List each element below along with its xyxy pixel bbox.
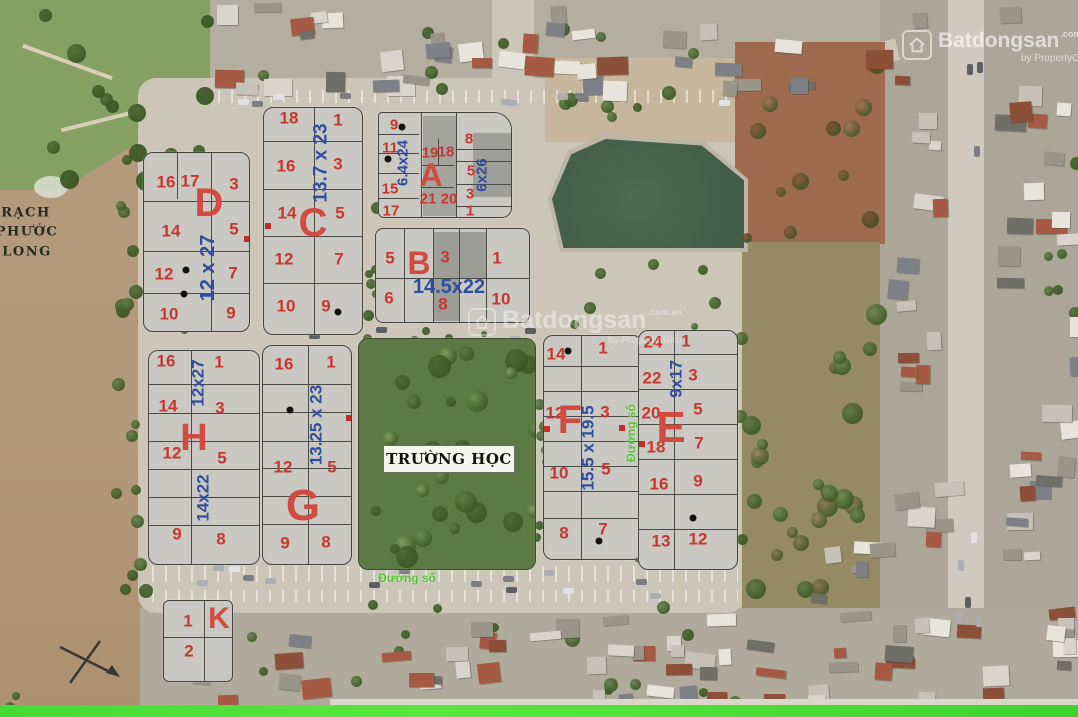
parked-car: [956, 612, 962, 623]
plot-number: 12: [275, 251, 294, 268]
tree: [383, 431, 398, 446]
house-roof: [455, 660, 471, 678]
street-name-label: Đường số: [624, 404, 638, 462]
house-roof: [597, 56, 629, 75]
tree: [698, 265, 708, 275]
plot-marker-red: [265, 223, 271, 229]
house-roof: [983, 688, 1004, 700]
house-roof: [1006, 517, 1029, 527]
house-roof: [894, 492, 920, 511]
plot-dimension: 15.5 x 19.5: [580, 405, 597, 490]
compass-arrow: [50, 635, 140, 690]
plot-number: 7: [334, 251, 343, 268]
house-roof: [300, 30, 315, 40]
tree: [351, 676, 362, 687]
tree: [129, 285, 143, 299]
parked-car: [636, 579, 647, 585]
house-roof: [409, 673, 434, 687]
tree: [838, 170, 849, 181]
plot-number: 5: [327, 459, 336, 476]
parked-car: [471, 581, 482, 587]
tree: [792, 173, 809, 190]
tree: [47, 141, 60, 154]
tree: [39, 9, 52, 22]
plot-number: 17: [383, 204, 400, 219]
house-roof: [373, 80, 399, 93]
parked-car: [974, 146, 980, 157]
block-letter-a: A: [419, 159, 442, 191]
tree: [607, 112, 617, 122]
block-h: 16 1 14 3 12 5 9 8 H 12x27 14x22: [148, 350, 260, 565]
plot-dimension: 6.4x24: [396, 140, 411, 186]
plot-number: 20: [441, 192, 458, 207]
school-block: TRƯỜNG HỌC: [358, 338, 536, 570]
parked-car: [238, 99, 249, 105]
house-roof: [746, 639, 774, 652]
parked-car: [719, 100, 730, 106]
tree: [682, 629, 694, 641]
tree: [60, 170, 79, 189]
parked-car: [197, 580, 208, 586]
tree: [128, 104, 146, 122]
tree: [604, 678, 618, 692]
tree: [826, 121, 841, 136]
tree: [757, 439, 768, 450]
house-roof: [1010, 463, 1032, 477]
house-roof: [576, 63, 596, 80]
house-roof: [1024, 183, 1045, 201]
plot-marker-dot: [399, 124, 406, 131]
house-roof: [866, 50, 893, 69]
block-g: 16 1 12 5 9 8 G 13.25 x 23: [262, 345, 352, 565]
plot-marker-dot: [183, 267, 190, 274]
plot-number: 8: [438, 296, 447, 313]
tree: [111, 488, 122, 499]
tree: [784, 226, 797, 239]
house-roof: [1057, 103, 1072, 117]
house-roof: [1043, 151, 1064, 166]
plot-number: 10: [550, 465, 569, 482]
tree: [422, 327, 430, 335]
tree: [196, 87, 214, 105]
house-roof: [671, 645, 684, 657]
parked-car: [544, 570, 555, 576]
house-roof: [927, 332, 942, 351]
house-roof: [934, 481, 964, 497]
block-a: 9 11 15 17 19 18 21 20 8 5 3 1 A 6.4x24 …: [378, 112, 512, 218]
tree: [527, 504, 536, 518]
house-roof: [472, 58, 492, 68]
plot-number: 1: [214, 354, 223, 371]
tree: [821, 485, 838, 502]
parked-car: [501, 99, 512, 105]
plot-dimension: 14.5x22: [413, 277, 485, 297]
house-roof: [1007, 218, 1034, 235]
parked-car: [557, 94, 568, 100]
plot-dimension: 13.7 x 23: [312, 123, 331, 202]
tree: [709, 297, 721, 309]
house-roof: [756, 667, 787, 679]
house-roof: [840, 611, 872, 623]
plot-number: 14: [547, 346, 566, 363]
river-name-line2: PHƯỚC: [0, 225, 58, 240]
house-roof: [498, 50, 526, 69]
house-roof: [1036, 475, 1063, 487]
house-roof: [603, 81, 628, 102]
house-roof: [919, 113, 937, 129]
house-roof: [791, 78, 808, 94]
plot-marker-dot: [385, 156, 392, 163]
house-roof: [663, 30, 687, 48]
parked-car: [958, 560, 964, 571]
plot-number: 21: [420, 192, 437, 207]
plot-number: 2: [184, 643, 193, 660]
house-roof: [1024, 552, 1040, 561]
house-roof: [718, 649, 731, 666]
street-name-label: Đường số: [378, 571, 436, 585]
house-roof: [895, 76, 910, 86]
house-roof: [254, 3, 281, 12]
parked-car: [229, 566, 240, 572]
house-roof: [933, 199, 949, 218]
house-roof: [425, 42, 450, 59]
tree: [842, 403, 863, 424]
watermark-byline: by PropertyGuru: [1021, 54, 1078, 64]
tree: [793, 535, 809, 551]
house-roof: [829, 661, 858, 672]
block-e: 24 1 22 3 20 5 18 7 16 9 13 12 E 9x17: [638, 330, 738, 570]
house-roof: [288, 634, 311, 648]
plot-marker-dot: [335, 309, 342, 316]
block-letter-c: C: [299, 203, 328, 243]
house-roof: [1070, 357, 1078, 377]
plot-number: 10: [277, 298, 296, 315]
house-roof: [774, 39, 802, 54]
tree: [737, 534, 748, 545]
tree: [747, 494, 762, 509]
tree: [833, 351, 846, 364]
house-roof: [887, 279, 909, 300]
block-letter-b: B: [407, 247, 430, 279]
tree: [633, 103, 642, 112]
tree: [371, 506, 381, 516]
house-roof: [675, 56, 693, 67]
watermark-top-right: Batdongsan .com.vn by PropertyGuru: [902, 30, 1078, 64]
parked-car: [243, 575, 254, 581]
tree: [466, 390, 488, 412]
tree: [131, 420, 140, 429]
plot-marker-dot: [596, 538, 603, 545]
plot-number: 1: [681, 333, 690, 350]
tree: [67, 44, 86, 63]
plot-number: 1: [333, 112, 342, 129]
tree: [866, 304, 887, 325]
house-roof: [998, 246, 1020, 266]
tree: [368, 600, 378, 610]
plot-number: 7: [228, 265, 237, 282]
watermark-domain: .com.vn: [1060, 30, 1078, 39]
house-roof: [1009, 101, 1033, 123]
river-name-line3: LONG: [2, 245, 51, 260]
tree: [396, 546, 418, 568]
plot-number: 5: [335, 205, 344, 222]
plot-number: 12: [274, 459, 293, 476]
house-roof: [1057, 233, 1078, 245]
tree: [363, 310, 374, 321]
house-roof: [700, 24, 718, 41]
house-roof: [666, 664, 692, 675]
plot-number: 14: [278, 205, 297, 222]
house-roof: [926, 532, 942, 548]
tree: [746, 579, 766, 599]
tree: [112, 378, 125, 391]
plot-number: 8: [559, 525, 568, 542]
house-roof: [884, 645, 913, 663]
plot-number: 1: [466, 204, 474, 219]
tree: [459, 346, 474, 361]
parked-car: [563, 588, 574, 594]
house-roof: [897, 257, 920, 273]
plot-number: 1: [326, 354, 335, 371]
plot-number: 1: [183, 613, 192, 630]
tree: [750, 123, 766, 139]
tree: [407, 395, 421, 409]
tree: [120, 584, 131, 595]
tree: [127, 245, 139, 257]
plot-dimension: 14x22: [195, 474, 212, 521]
plot-number: 3: [333, 156, 342, 173]
house-roof: [707, 613, 736, 626]
house-roof: [1042, 405, 1072, 423]
plot-number: 3: [600, 404, 609, 421]
house-roof: [907, 506, 935, 527]
tree: [1053, 285, 1063, 295]
house-roof: [1057, 456, 1076, 478]
tree: [596, 32, 606, 42]
plot-number: 3: [440, 249, 449, 266]
house-roof: [1063, 638, 1077, 654]
watermark-brand: Batdongsan: [502, 308, 646, 333]
house-roof: [593, 690, 605, 699]
plot-number: 18: [280, 110, 299, 127]
plot-dimension: 12x27: [190, 359, 207, 406]
plot-number: 1: [492, 250, 501, 267]
tree: [259, 667, 268, 676]
block-letter-d: D: [195, 183, 224, 223]
plot-marker-red: [346, 415, 352, 421]
plot-number: 3: [229, 176, 238, 193]
house-roof: [700, 667, 717, 680]
plot-number: 14: [162, 223, 181, 240]
house-roof: [834, 648, 847, 659]
house-roof: [446, 647, 468, 662]
parked-car: [273, 94, 284, 100]
tree: [630, 679, 641, 690]
plot-number: 22: [643, 370, 662, 387]
tree: [131, 515, 144, 528]
plot-dimension: 12 x 27: [198, 235, 218, 302]
tree: [121, 298, 134, 311]
satellite-plot-map: 16 17 3 14 5 12 7 10 9 D 12 x 27 18 1 16…: [0, 0, 1078, 717]
tree: [127, 570, 138, 581]
house-roof: [1003, 549, 1021, 560]
tree: [862, 211, 879, 228]
house-roof: [874, 662, 892, 680]
house-roof: [914, 618, 929, 634]
house-roof: [1060, 419, 1078, 439]
house-roof: [646, 684, 674, 698]
house-roof: [218, 695, 238, 706]
brand-house-icon: [902, 30, 932, 60]
tree: [12, 692, 20, 700]
plot-number: 9: [172, 526, 181, 543]
watermark-domain: .com.vn: [647, 308, 681, 317]
tree: [771, 549, 783, 561]
plot-number: 6: [384, 290, 393, 307]
parked-car: [340, 93, 351, 99]
tree: [126, 430, 138, 442]
tree: [401, 630, 410, 639]
block-k: 1 2 K: [163, 600, 233, 682]
block-letter-g: G: [286, 484, 320, 528]
tree: [432, 506, 448, 522]
tree: [446, 397, 456, 407]
plot-number: 7: [598, 521, 607, 538]
plot-number: 8: [216, 531, 225, 548]
plot-number: 12: [155, 266, 174, 283]
house-roof: [522, 33, 538, 53]
tree: [776, 187, 786, 197]
tree: [131, 485, 141, 495]
house-roof: [912, 132, 931, 144]
block-d: 16 17 3 14 5 12 7 10 9 D 12 x 27: [143, 152, 250, 332]
tree: [116, 201, 126, 211]
house-roof: [893, 625, 906, 642]
tree: [247, 632, 257, 642]
house-roof: [982, 665, 1009, 686]
house-roof: [1019, 485, 1035, 501]
tree: [811, 512, 827, 528]
tree: [416, 484, 429, 497]
tree: [455, 491, 477, 513]
house-roof: [382, 651, 412, 662]
parked-car: [503, 576, 514, 582]
parked-car: [252, 101, 263, 107]
plot-dimension: 9x17: [668, 360, 685, 398]
tree: [691, 323, 698, 330]
tree: [414, 529, 432, 547]
tree: [395, 375, 410, 390]
house-roof: [530, 631, 562, 642]
house-roof: [901, 366, 919, 377]
house-roof: [326, 72, 345, 92]
tree: [139, 584, 153, 598]
tree: [428, 355, 451, 378]
house-roof: [856, 561, 868, 577]
plot-number: 8: [465, 132, 473, 147]
plot-number: 7: [694, 435, 703, 452]
plot-number: 5: [693, 401, 702, 418]
parked-car: [213, 565, 224, 571]
plot-number: 5: [217, 450, 226, 467]
plot-number: 16: [157, 353, 176, 370]
plot-number: 3: [215, 400, 224, 417]
house-roof: [1057, 661, 1072, 671]
brand-house-icon: [468, 308, 496, 336]
tree: [505, 367, 517, 379]
plot-number: 16: [277, 158, 296, 175]
plot-number: 5: [601, 461, 610, 478]
plot-marker-dot: [181, 291, 188, 298]
block-letter-e: E: [656, 406, 685, 450]
tree: [433, 604, 442, 613]
plot-marker-red: [244, 236, 250, 242]
plot-marker-dot: [690, 515, 697, 522]
plot-marker-dot: [287, 407, 294, 414]
plot-number: 10: [492, 291, 511, 308]
house-roof: [1052, 212, 1070, 228]
plot-number: 9: [693, 473, 702, 490]
house-roof: [603, 615, 629, 626]
tree: [762, 96, 778, 112]
photo-green-border: [0, 705, 1078, 717]
tree: [850, 508, 865, 523]
house-roof: [274, 652, 303, 670]
plot-number: 9: [390, 118, 398, 133]
tree: [657, 601, 670, 614]
block-letter-h: H: [180, 419, 207, 457]
plot-marker-dot: [565, 348, 572, 355]
plot-number: 16: [650, 476, 669, 493]
watermark-byline: by PropertyGuru: [608, 336, 681, 346]
tree: [1070, 157, 1078, 170]
house-roof: [1000, 6, 1022, 23]
plot-dimension: 13.25 x 23: [308, 385, 325, 465]
tree: [1057, 249, 1067, 259]
plot-number: 10: [160, 306, 179, 323]
parked-car: [965, 597, 971, 608]
plot-number: 16: [275, 356, 294, 373]
house-roof: [608, 644, 635, 656]
plot-number: 5: [229, 221, 238, 238]
house-roof: [489, 640, 506, 652]
house-roof: [722, 81, 737, 97]
plot-number: 14: [159, 398, 178, 415]
plot-marker-red: [544, 426, 550, 432]
house-roof: [997, 278, 1024, 288]
house-roof: [870, 542, 896, 558]
watermark-center: Batdongsan .com.vn by PropertyGuru: [468, 308, 681, 346]
house-roof: [471, 622, 493, 637]
house-roof: [1021, 451, 1041, 460]
tree: [1044, 252, 1053, 261]
house-roof: [524, 56, 554, 77]
house-roof: [477, 662, 501, 685]
river-name-line1: RẠCH: [1, 206, 51, 221]
tree: [648, 259, 659, 270]
house-roof: [897, 300, 917, 312]
tree: [134, 558, 147, 571]
plot-number: 9: [280, 535, 289, 552]
tree: [201, 15, 214, 28]
school-label: TRƯỜNG HỌC: [383, 445, 515, 473]
tree: [742, 233, 752, 243]
plot-number: 9: [321, 298, 330, 315]
plot-marker-red: [639, 441, 645, 447]
plot-number: 12: [689, 531, 708, 548]
block-c: 18 1 16 3 14 5 12 7 10 9 C 13.7 x 23: [263, 107, 363, 335]
parked-car: [967, 64, 973, 75]
